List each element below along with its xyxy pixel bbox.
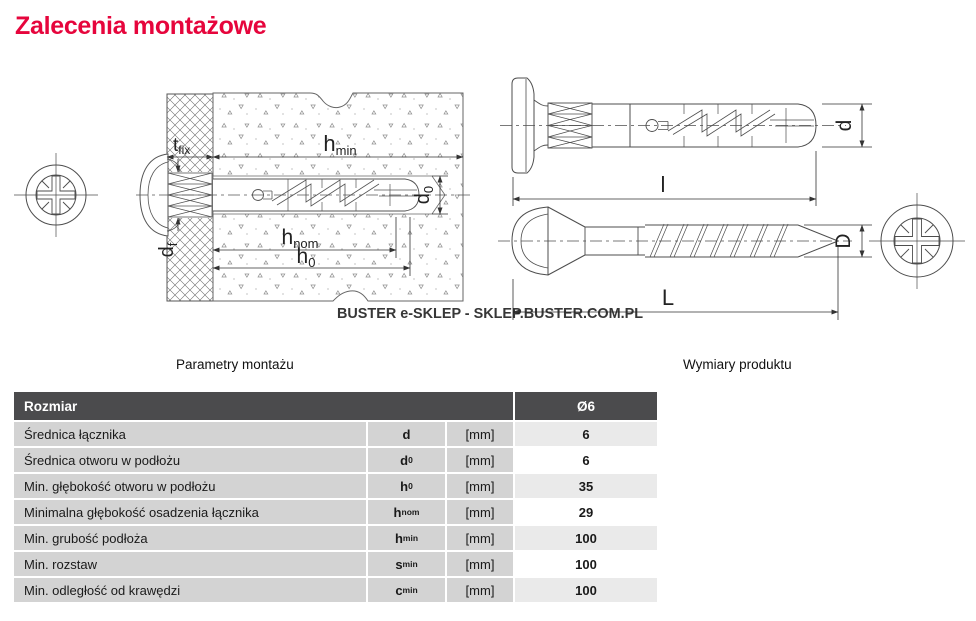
param-unit: [mm]	[447, 526, 513, 550]
param-unit: [mm]	[447, 552, 513, 576]
param-symbol: hmin	[368, 526, 445, 550]
param-label: Min. głębokość otworu w podłożu	[14, 474, 366, 498]
param-unit: [mm]	[447, 474, 513, 498]
table-header-row: Rozmiar Ø6	[14, 392, 657, 420]
table-row: Minimalna głębokość osadzenia łącznika h…	[14, 500, 657, 524]
param-symbol: h0	[368, 474, 445, 498]
dim-label-L-screw: L	[662, 285, 674, 310]
param-value: 100	[515, 552, 657, 576]
param-value: 100	[515, 578, 657, 602]
param-unit: [mm]	[447, 578, 513, 602]
table-row: Min. grubość podłoża hmin [mm] 100	[14, 526, 657, 550]
param-unit: [mm]	[447, 500, 513, 524]
param-value: 100	[515, 526, 657, 550]
param-symbol: smin	[368, 552, 445, 576]
page-title: Zalecenia montażowe	[15, 12, 266, 41]
param-symbol: cmin	[368, 578, 445, 602]
plug-dimensions	[513, 104, 872, 206]
param-symbol: d	[368, 422, 445, 446]
param-value: 6	[515, 422, 657, 446]
dim-label-d-plug: d	[833, 120, 856, 132]
param-unit: [mm]	[447, 422, 513, 446]
plug-side-view	[500, 78, 846, 173]
param-label: Średnica otworu w podłożu	[14, 448, 366, 472]
watermark: BUSTER e-SKLEP - SKLEP.BUSTER.COM.PL	[337, 305, 643, 322]
param-label: Średnica łącznika	[14, 422, 366, 446]
param-label: Min. odległość od krawędzi	[14, 578, 366, 602]
screw-head-front-view-right	[869, 193, 965, 289]
table-row: Średnica łącznika d [mm] 6	[14, 422, 657, 446]
param-unit: [mm]	[447, 448, 513, 472]
table-row: Min. odległość od krawędzi cmin [mm] 100	[14, 578, 657, 602]
dim-label-l-plug: l	[661, 172, 666, 197]
screw-side-view	[498, 207, 852, 275]
param-label: Minimalna głębokość osadzenia łącznika	[14, 500, 366, 524]
screw-head-front-view-left	[14, 153, 98, 237]
installation-drawing: tfix hmin d0 hnom h0 df	[0, 60, 976, 350]
param-value: 6	[515, 448, 657, 472]
section-title-parameters: Parametry montażu	[176, 357, 294, 372]
dim-label-df: df	[156, 242, 180, 257]
param-label: Min. rozstaw	[14, 552, 366, 576]
header-size: Ø6	[515, 392, 657, 420]
section-title-dimensions: Wymiary produktu	[683, 357, 792, 372]
param-symbol: d0	[368, 448, 445, 472]
parameters-table: Rozmiar Ø6 Średnica łącznika d [mm] 6 Śr…	[14, 392, 657, 604]
table-row: Min. głębokość otworu w podłożu h0 [mm] …	[14, 474, 657, 498]
datasheet-page: Zalecenia montażowe	[0, 0, 976, 621]
header-rozmiar: Rozmiar	[14, 392, 513, 420]
dim-label-D-screw: D	[832, 233, 855, 248]
table-row: Min. rozstaw smin [mm] 100	[14, 552, 657, 576]
param-label: Min. grubość podłoża	[14, 526, 366, 550]
param-value: 35	[515, 474, 657, 498]
param-value: 29	[515, 500, 657, 524]
param-symbol: hnom	[368, 500, 445, 524]
table-row: Średnica otworu w podłożu d0 [mm] 6	[14, 448, 657, 472]
